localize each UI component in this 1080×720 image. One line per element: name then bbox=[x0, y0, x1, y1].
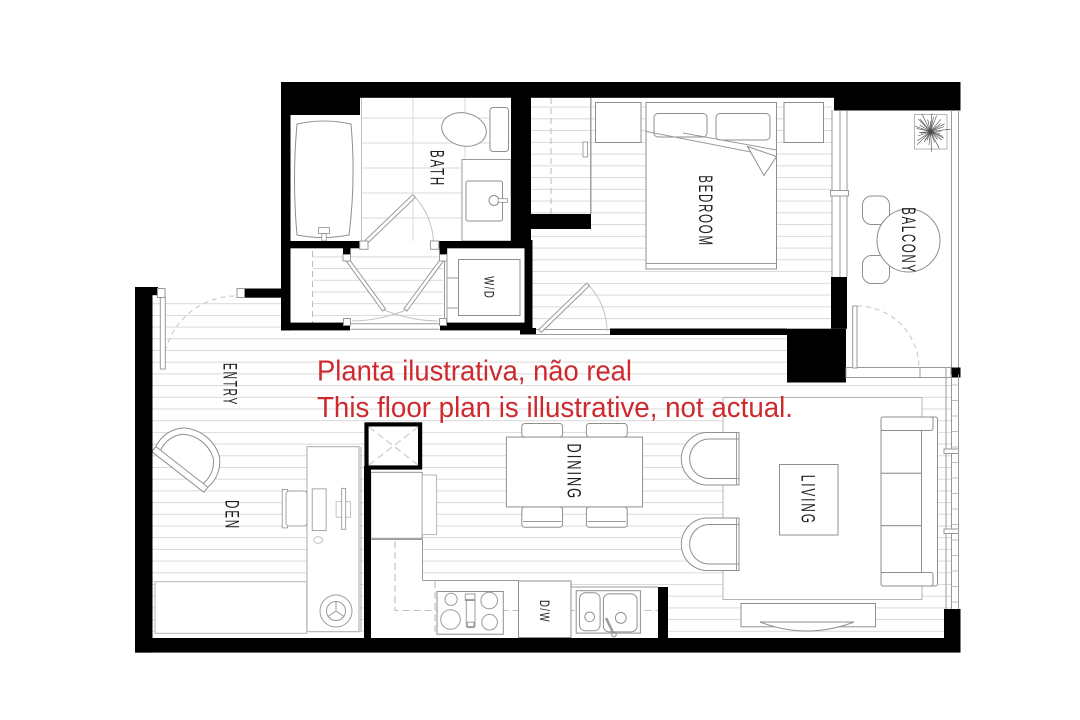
svg-text:This floor plan is illustrativ: This floor plan is illustrative, not act… bbox=[317, 392, 793, 424]
svg-text:ENTRY: ENTRY bbox=[219, 363, 241, 406]
svg-text:BATH: BATH bbox=[426, 150, 448, 187]
svg-text:Planta ilustrativa, não real: Planta ilustrativa, não real bbox=[317, 356, 632, 388]
svg-text:W/D: W/D bbox=[481, 276, 496, 299]
svg-text:BALCONY: BALCONY bbox=[897, 207, 919, 274]
svg-text:DINING: DINING bbox=[563, 444, 585, 501]
svg-text:LIVING: LIVING bbox=[797, 475, 819, 525]
svg-text:BEDROOM: BEDROOM bbox=[694, 175, 716, 247]
svg-text:DEN: DEN bbox=[221, 500, 243, 530]
svg-text:D/W: D/W bbox=[537, 600, 552, 623]
